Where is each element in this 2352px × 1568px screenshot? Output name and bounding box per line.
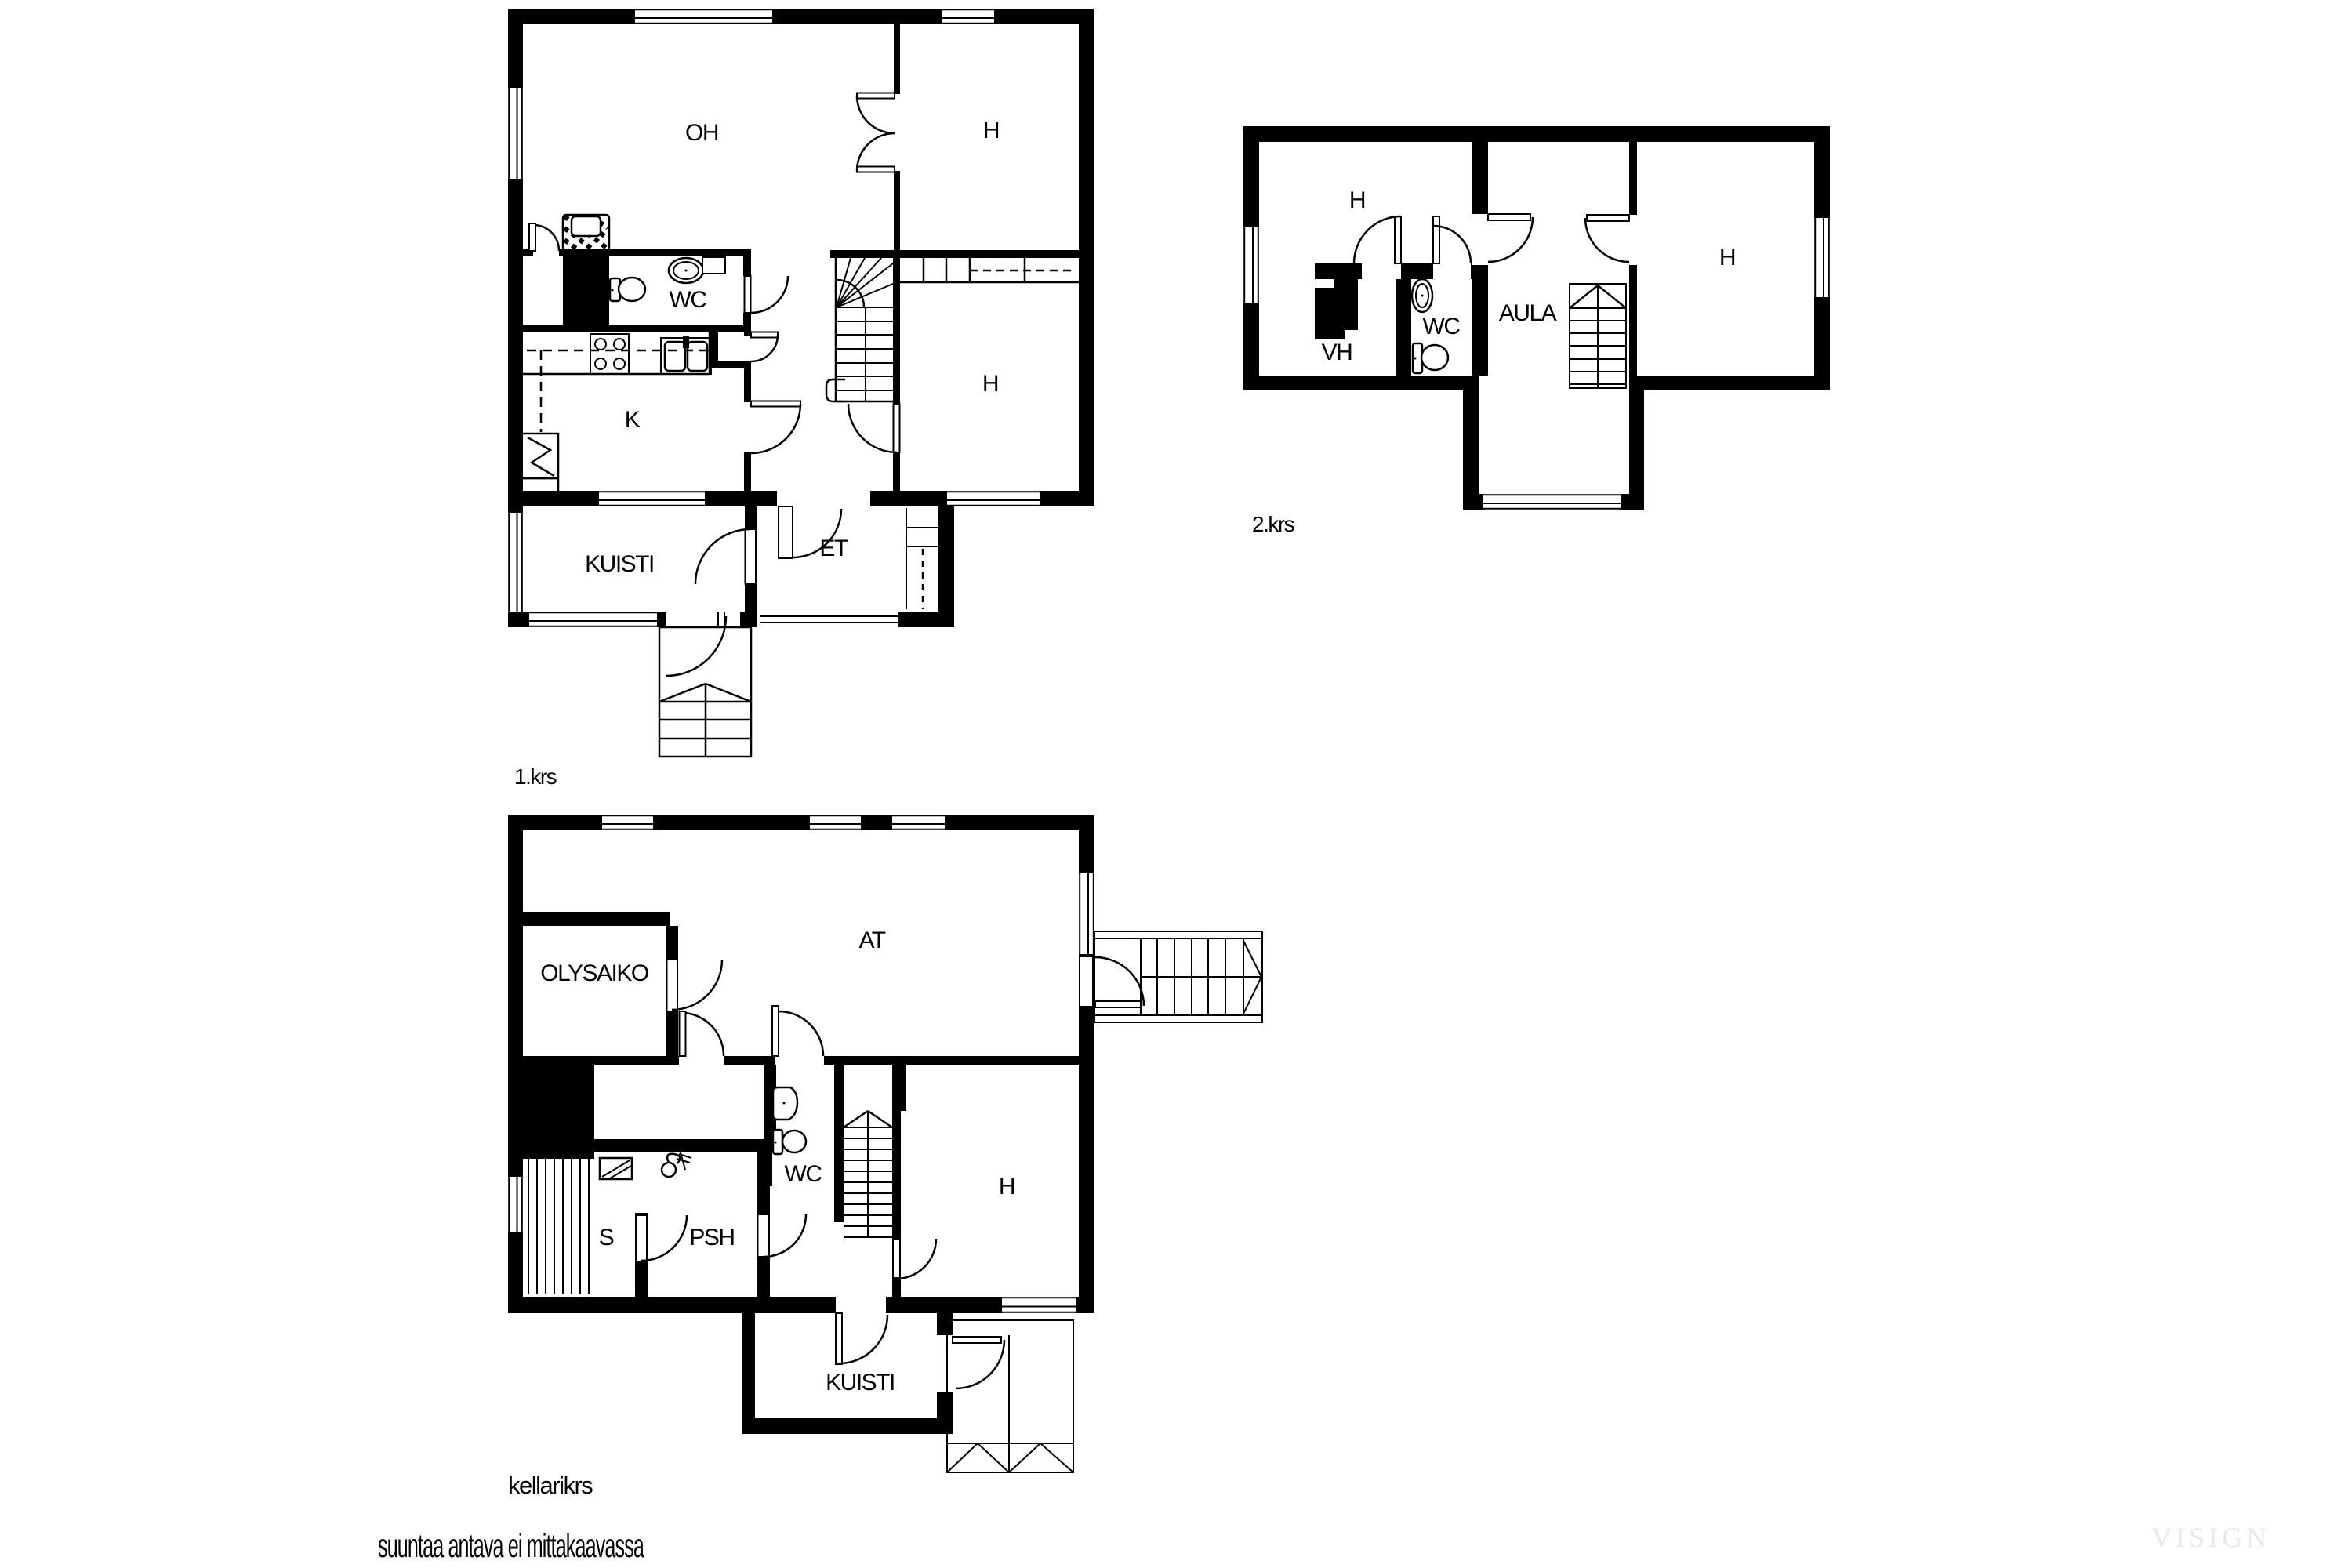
svg-text:WC: WC [785,1161,822,1187]
svg-text:VISIGN: VISIGN [2151,1522,2270,1553]
svg-text:AT: AT [858,927,885,953]
svg-text:2.krs: 2.krs [1252,512,1294,536]
svg-text:H: H [999,1174,1014,1200]
svg-text:VH: VH [1322,339,1352,365]
svg-text:KUISTI: KUISTI [585,551,654,577]
svg-text:suuntaa antava ei mittakaavass: suuntaa antava ei mittakaavassa [378,1527,644,1565]
svg-text:OLYSAIKO: OLYSAIKO [540,960,648,986]
svg-text:H: H [983,118,999,143]
svg-text:KUISTI: KUISTI [826,1370,895,1396]
svg-text:kellarikrs: kellarikrs [508,1472,593,1499]
svg-text:OH: OH [685,120,718,146]
svg-text:PSH: PSH [689,1225,734,1250]
svg-text:H: H [1349,187,1365,213]
svg-text:ET: ET [819,535,848,561]
svg-text:WC: WC [1423,314,1461,339]
svg-text:H: H [1719,245,1735,270]
svg-text:H: H [982,371,998,397]
svg-text:AULA: AULA [1499,300,1557,326]
svg-text:1.krs: 1.krs [514,764,557,789]
svg-text:WC: WC [670,287,707,313]
svg-text:K: K [625,407,641,433]
svg-text:S: S [599,1225,614,1250]
